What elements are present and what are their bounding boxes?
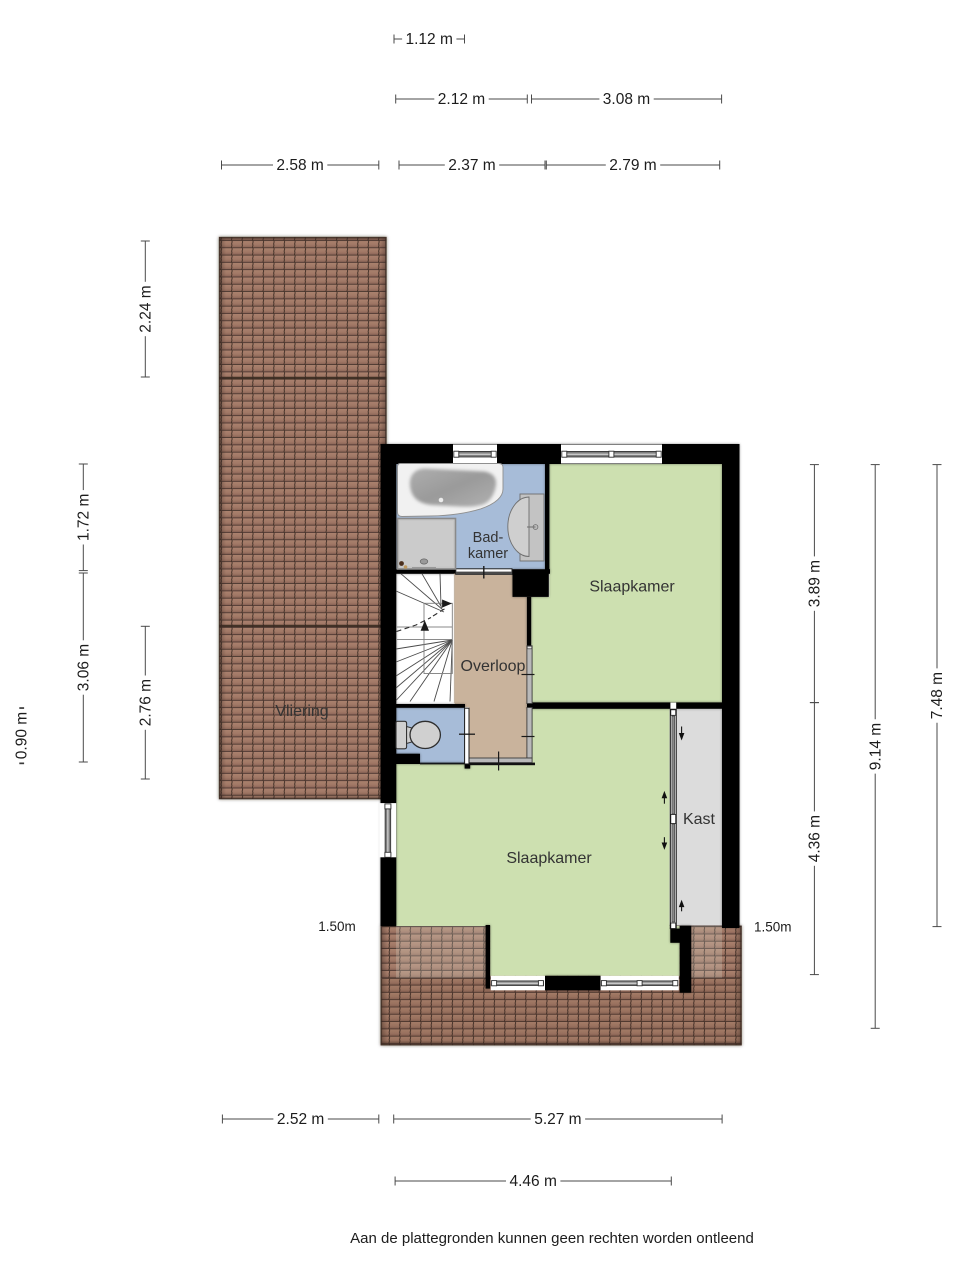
svg-text:kamer: kamer — [468, 546, 508, 562]
svg-text:2.58 m: 2.58 m — [276, 157, 323, 174]
svg-text:5.27 m: 5.27 m — [534, 1111, 581, 1128]
svg-text:Vliering: Vliering — [275, 703, 328, 720]
svg-text:2.79 m: 2.79 m — [609, 157, 656, 174]
svg-text:Slaapkamer: Slaapkamer — [506, 850, 592, 867]
svg-text:3.06 m: 3.06 m — [76, 644, 93, 691]
svg-text:2.76 m: 2.76 m — [138, 679, 155, 726]
svg-text:4.36 m: 4.36 m — [807, 815, 824, 862]
svg-text:4.46 m: 4.46 m — [510, 1173, 557, 1190]
svg-text:Aan de plattegronden kunnen ge: Aan de plattegronden kunnen geen rechten… — [350, 1230, 754, 1247]
svg-text:1.50m: 1.50m — [754, 920, 792, 935]
svg-text:1.72 m: 1.72 m — [76, 494, 93, 541]
svg-text:Slaapkamer: Slaapkamer — [589, 579, 675, 596]
svg-text:1.12 m: 1.12 m — [406, 31, 453, 48]
svg-text:Bad-: Bad- — [473, 530, 504, 546]
svg-text:2.24 m: 2.24 m — [138, 285, 155, 332]
svg-text:0.90 m: 0.90 m — [14, 712, 31, 759]
svg-text:3.89 m: 3.89 m — [807, 560, 824, 607]
svg-text:3.08 m: 3.08 m — [603, 91, 650, 108]
svg-text:Overloop: Overloop — [461, 658, 526, 675]
svg-text:7.48 m: 7.48 m — [929, 672, 946, 719]
svg-text:2.52 m: 2.52 m — [277, 1111, 324, 1128]
svg-text:2.37 m: 2.37 m — [448, 157, 495, 174]
svg-text:9.14 m: 9.14 m — [867, 723, 884, 770]
svg-text:2.12 m: 2.12 m — [438, 91, 485, 108]
svg-text:1.50m: 1.50m — [318, 919, 356, 934]
svg-text:Kast: Kast — [683, 811, 716, 828]
